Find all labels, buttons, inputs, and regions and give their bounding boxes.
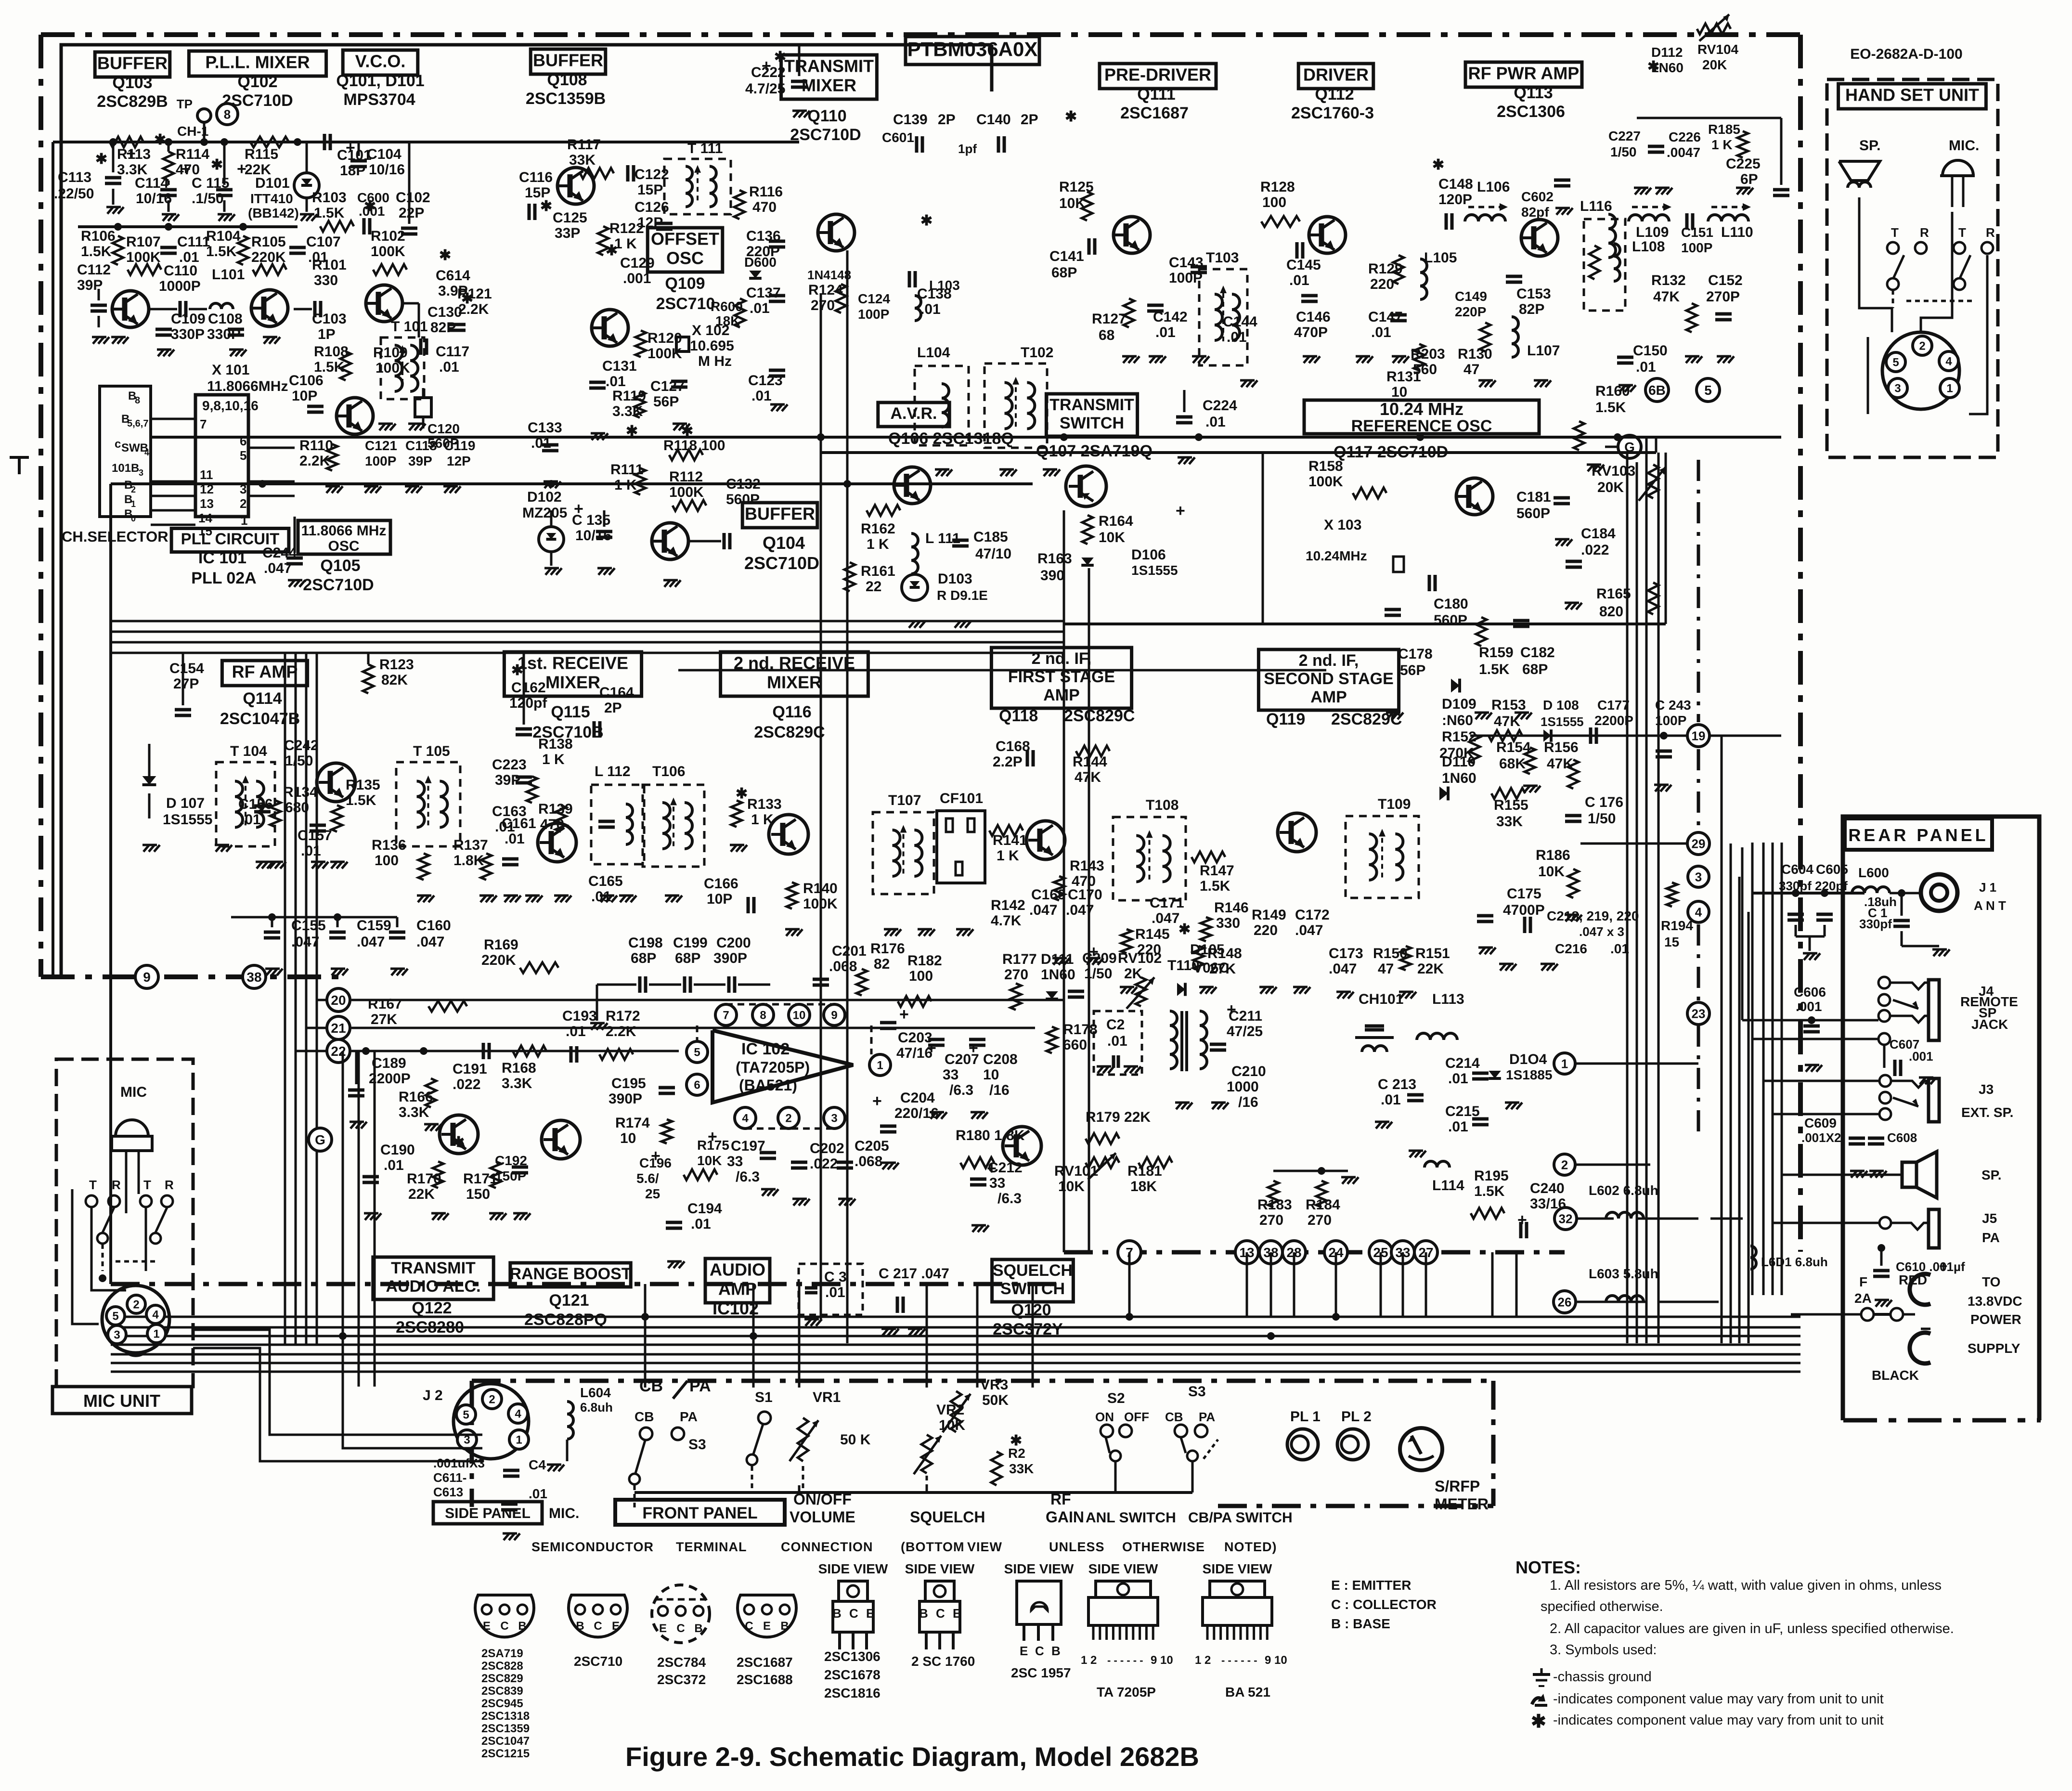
svg-text:100K: 100K <box>803 896 838 912</box>
svg-text:R132: R132 <box>1651 273 1686 288</box>
svg-text:MIC UNIT: MIC UNIT <box>83 1391 160 1411</box>
svg-text:390: 390 <box>1040 568 1064 584</box>
svg-text:PA: PA <box>680 1409 698 1424</box>
svg-text:R118 100: R118 100 <box>663 438 725 454</box>
svg-text:SQUELCH: SQUELCH <box>993 1261 1073 1280</box>
svg-text:L101: L101 <box>212 267 245 283</box>
svg-text:2SC 1957: 2SC 1957 <box>1011 1665 1071 1680</box>
svg-text:B: B <box>518 1620 526 1633</box>
svg-text:C112: C112 <box>77 262 111 278</box>
svg-text:1pf: 1pf <box>958 142 977 156</box>
svg-text:✱: ✱ <box>1178 921 1191 937</box>
svg-text:A.V.R.: A.V.R. <box>890 404 937 423</box>
svg-text:-indicates component value may: -indicates component value may vary from… <box>1553 1691 1884 1707</box>
svg-text:C: C <box>849 1606 858 1621</box>
svg-text:R195: R195 <box>1474 1168 1509 1184</box>
svg-text:C173: C173 <box>1329 946 1363 961</box>
svg-text:11.8066 MHz: 11.8066 MHz <box>301 523 387 539</box>
svg-text:/16: /16 <box>1238 1094 1258 1110</box>
svg-text:.01: .01 <box>1448 1119 1468 1135</box>
svg-text:TRANSMIT: TRANSMIT <box>391 1259 476 1277</box>
svg-text:C111: C111 <box>177 234 210 250</box>
svg-text:J3: J3 <box>1979 1082 1994 1097</box>
svg-text:68K: 68K <box>1499 756 1526 772</box>
svg-text:3: 3 <box>831 1112 837 1125</box>
svg-text:ITT410: ITT410 <box>250 191 293 206</box>
svg-text:R149: R149 <box>1252 907 1286 923</box>
svg-text:C162: C162 <box>511 680 546 696</box>
svg-text:330pf: 330pf <box>1859 917 1892 931</box>
svg-text:2SC710: 2SC710 <box>656 295 715 313</box>
svg-text:C121: C121 <box>365 438 397 453</box>
svg-text:C180: C180 <box>1434 596 1468 612</box>
svg-text:VR1: VR1 <box>813 1389 841 1405</box>
svg-text:2SC784: 2SC784 <box>657 1655 706 1670</box>
svg-text:100K: 100K <box>1308 474 1343 490</box>
svg-text:RV102: RV102 <box>1118 950 1162 966</box>
svg-text:100P: 100P <box>365 454 396 468</box>
svg-text:2SC1687: 2SC1687 <box>1120 104 1189 122</box>
svg-text:C175: C175 <box>1507 886 1541 902</box>
svg-text:REFERENCE OSC: REFERENCE OSC <box>1351 417 1492 435</box>
svg-text:PL 2: PL 2 <box>1341 1409 1372 1425</box>
svg-text:✱: ✱ <box>95 151 107 167</box>
svg-text:.1/50: .1/50 <box>192 191 224 207</box>
svg-text:OFF: OFF <box>1124 1410 1149 1424</box>
svg-text:CH-1: CH-1 <box>177 124 208 139</box>
svg-text:2SC710: 2SC710 <box>574 1654 622 1669</box>
svg-text:.047: .047 <box>1029 902 1057 918</box>
svg-text:47K: 47K <box>1494 714 1520 729</box>
svg-text:100P: 100P <box>858 307 889 322</box>
svg-text:3. Symbols used:: 3. Symbols used: <box>1550 1642 1657 1658</box>
svg-text:82P: 82P <box>1519 301 1544 317</box>
svg-text:2 nd. IF,: 2 nd. IF, <box>1032 649 1092 668</box>
svg-text:C152: C152 <box>1708 273 1743 288</box>
svg-text:100P: 100P <box>1681 240 1712 255</box>
svg-text:C202: C202 <box>810 1141 844 1156</box>
svg-text:+: + <box>1939 1259 1948 1274</box>
svg-text:560P: 560P <box>1516 506 1550 521</box>
svg-text:C140: C140 <box>976 112 1011 128</box>
svg-text:C193: C193 <box>562 1008 597 1024</box>
svg-text:2SC710D: 2SC710D <box>303 576 374 594</box>
svg-text:RF PWR AMP: RF PWR AMP <box>1468 64 1580 83</box>
svg-text:TA 7205P: TA 7205P <box>1097 1685 1156 1700</box>
svg-text:9: 9 <box>143 970 151 985</box>
svg-text:1 K: 1 K <box>867 536 889 552</box>
svg-text:+: + <box>927 1039 936 1057</box>
svg-text:METER: METER <box>1435 1495 1489 1513</box>
svg-text:C194: C194 <box>687 1201 722 1217</box>
svg-text:1 K: 1 K <box>1711 137 1733 152</box>
svg-text:68: 68 <box>1099 327 1114 343</box>
svg-text:19: 19 <box>1692 728 1706 743</box>
svg-text:- - - - - -: - - - - - - <box>1107 1654 1143 1666</box>
svg-text:✱: ✱ <box>511 662 523 678</box>
svg-text:T: T <box>1891 225 1899 240</box>
svg-text:✱: ✱ <box>606 243 618 259</box>
svg-text:.22/50: .22/50 <box>54 186 94 202</box>
svg-text:1.5K: 1.5K <box>1479 662 1510 677</box>
svg-text:.068: .068 <box>855 1154 882 1169</box>
svg-text:IC102: IC102 <box>712 1298 759 1318</box>
svg-text:1 K: 1 K <box>997 848 1019 864</box>
svg-text:4: 4 <box>1695 905 1702 919</box>
svg-text:(BA521): (BA521) <box>739 1077 797 1094</box>
svg-text:C2: C2 <box>1106 1017 1125 1033</box>
svg-text:330P: 330P <box>171 326 205 342</box>
svg-text:2SC1318: 2SC1318 <box>481 1710 530 1723</box>
svg-text:+: + <box>1176 502 1185 520</box>
svg-text:560P: 560P <box>1434 612 1467 628</box>
svg-text:2.2K: 2.2K <box>299 453 330 469</box>
svg-text:TRANSMIT: TRANSMIT <box>1049 396 1134 414</box>
svg-text:R135: R135 <box>346 777 380 793</box>
svg-text:1.5K: 1.5K <box>346 792 376 808</box>
svg-text:MIC.: MIC. <box>1949 138 1979 154</box>
svg-text:12P: 12P <box>447 454 471 468</box>
svg-text:C130: C130 <box>427 304 462 320</box>
svg-text:L106: L106 <box>1477 179 1510 195</box>
svg-text:- - - - - -: - - - - - - <box>1221 1654 1257 1666</box>
svg-text:1S1885: 1S1885 <box>1506 1067 1553 1082</box>
svg-text:AMP: AMP <box>1043 686 1080 704</box>
svg-text:-chassis ground: -chassis ground <box>1553 1669 1652 1685</box>
svg-text:3.3K: 3.3K <box>399 1104 429 1120</box>
svg-text:C604: C604 <box>1781 862 1813 877</box>
svg-text:330: 330 <box>1216 915 1240 931</box>
svg-text:✱: ✱ <box>1432 157 1444 173</box>
svg-text:27P: 27P <box>173 676 199 692</box>
svg-text:.01: .01 <box>495 819 515 835</box>
svg-text:6B: 6B <box>1648 383 1666 398</box>
svg-text:C 243: C 243 <box>1655 698 1691 713</box>
svg-text:2SC829: 2SC829 <box>481 1672 523 1685</box>
svg-text:R151: R151 <box>1415 946 1450 961</box>
svg-text:C114: C114 <box>135 175 168 191</box>
svg-text:C172: C172 <box>1295 907 1330 923</box>
svg-text:E: E <box>763 1620 771 1633</box>
svg-text:R143: R143 <box>1070 858 1104 874</box>
svg-text:T: T <box>1958 225 1966 240</box>
svg-text:1 2: 1 2 <box>1081 1654 1097 1667</box>
svg-text:33: 33 <box>727 1154 743 1169</box>
svg-text:B: B <box>919 1606 928 1621</box>
svg-text:C154: C154 <box>169 661 204 676</box>
svg-text:4700P: 4700P <box>1503 902 1545 918</box>
svg-text:.001: .001 <box>1909 1049 1933 1064</box>
svg-text:Q102: Q102 <box>237 73 277 91</box>
svg-text:R103: R103 <box>312 190 347 206</box>
svg-text:Figure 2-9. Schematic Diagram,: Figure 2-9. Schematic Diagram, Model 268… <box>625 1741 1199 1772</box>
svg-text:2.2K: 2.2K <box>606 1024 636 1039</box>
svg-text:C107: C107 <box>306 234 341 250</box>
svg-text:1000P: 1000P <box>159 278 201 294</box>
svg-text:EXT. SP.: EXT. SP. <box>1961 1105 2013 1120</box>
svg-text:+: + <box>762 57 771 75</box>
svg-text:15: 15 <box>1664 934 1679 949</box>
svg-text:SIDE VIEW: SIDE VIEW <box>1088 1561 1158 1576</box>
svg-text:220P: 220P <box>1455 304 1486 319</box>
svg-text:✱: ✱ <box>364 198 376 214</box>
svg-text:T: T <box>89 1178 97 1192</box>
svg-text:Q113: Q113 <box>1514 84 1553 102</box>
svg-text:NOTED): NOTED) <box>1224 1540 1277 1554</box>
svg-text:RV104: RV104 <box>1697 42 1739 57</box>
svg-text:100K: 100K <box>126 249 161 265</box>
svg-text:33K: 33K <box>1496 814 1523 830</box>
svg-text:1: 1 <box>877 1059 883 1072</box>
svg-text:POWER: POWER <box>1970 1312 2021 1327</box>
svg-text:R141: R141 <box>993 832 1027 848</box>
svg-text:PRE-DRIVER: PRE-DRIVER <box>1104 65 1211 85</box>
svg-text:C209: C209 <box>1082 950 1117 966</box>
svg-text:10K: 10K <box>1058 1179 1085 1194</box>
svg-text:T: T <box>143 1178 151 1192</box>
svg-text:33K: 33K <box>1009 1461 1034 1476</box>
svg-text:PTBM036A0X: PTBM036A0X <box>907 38 1038 60</box>
svg-text:R177: R177 <box>1002 951 1037 967</box>
svg-text:M Hz: M Hz <box>698 353 732 369</box>
svg-text:.022: .022 <box>810 1156 838 1172</box>
svg-text:6: 6 <box>694 1079 700 1092</box>
svg-text:C149: C149 <box>1455 289 1487 304</box>
svg-text:✱: ✱ <box>1065 109 1077 125</box>
svg-text:1.5K: 1.5K <box>1595 400 1626 415</box>
svg-text:L116: L116 <box>1580 198 1612 214</box>
svg-text:R194: R194 <box>1661 918 1693 933</box>
svg-text:.022: .022 <box>453 1077 480 1092</box>
svg-text:10.24MHz: 10.24MHz <box>1306 548 1367 563</box>
svg-text:CF101: CF101 <box>940 791 983 806</box>
svg-text:.01: .01 <box>591 889 611 905</box>
svg-text:CB: CB <box>639 1377 663 1395</box>
svg-text:2SC829B: 2SC829B <box>97 92 168 111</box>
svg-text:220pf: 220pf <box>1815 879 1848 893</box>
svg-text:MIC.: MIC. <box>549 1505 579 1521</box>
svg-text:470: 470 <box>752 199 777 215</box>
svg-text:L602 6.8uh: L602 6.8uh <box>1589 1183 1658 1198</box>
svg-text:G: G <box>315 1132 325 1147</box>
svg-text:C: C <box>1035 1644 1044 1658</box>
svg-text:J5: J5 <box>1982 1211 1997 1226</box>
svg-text:C606: C606 <box>1794 985 1826 999</box>
svg-text:39P: 39P <box>495 772 520 788</box>
svg-text:1 K: 1 K <box>542 752 565 767</box>
svg-text:R155: R155 <box>1494 797 1528 813</box>
svg-text:22K: 22K <box>408 1186 435 1202</box>
svg-text:OSC: OSC <box>328 538 359 554</box>
svg-text:2SC829C: 2SC829C <box>1064 707 1135 725</box>
svg-text:V.C.O.: V.C.O. <box>355 52 406 71</box>
svg-text:2SC710D: 2SC710D <box>744 553 819 573</box>
svg-text:+: + <box>899 1005 909 1024</box>
svg-text:R167: R167 <box>368 996 402 1012</box>
svg-text:GAIN: GAIN <box>1046 1508 1084 1526</box>
svg-text:T108: T108 <box>1146 797 1178 813</box>
svg-text:R160: R160 <box>1595 383 1630 399</box>
svg-text:C195: C195 <box>611 1076 646 1091</box>
svg-text:X 101: X 101 <box>212 362 249 378</box>
svg-text:C145: C145 <box>1286 257 1321 273</box>
svg-text:270: 270 <box>1259 1212 1283 1228</box>
svg-text:T103: T103 <box>1206 250 1239 266</box>
svg-text:RANGE BOOST: RANGE BOOST <box>509 1265 631 1283</box>
svg-text:330: 330 <box>314 273 338 288</box>
svg-text:22: 22 <box>866 579 881 595</box>
svg-text:2SC1047: 2SC1047 <box>481 1735 530 1748</box>
svg-text:1 2: 1 2 <box>1195 1654 1211 1667</box>
svg-text:220K: 220K <box>251 249 286 265</box>
svg-text:C198: C198 <box>628 935 663 951</box>
svg-text:TERMINAL: TERMINAL <box>676 1540 747 1554</box>
svg-text:C133: C133 <box>528 420 562 436</box>
svg-text:1000: 1000 <box>1227 1079 1259 1095</box>
svg-text:/6.3: /6.3 <box>949 1082 973 1098</box>
svg-text:10: 10 <box>1391 384 1407 400</box>
svg-text:.01: .01 <box>606 374 626 389</box>
svg-text:C116: C116 <box>519 169 553 185</box>
svg-text:C189: C189 <box>372 1055 406 1071</box>
svg-text:R139: R139 <box>538 801 573 817</box>
svg-text:C613: C613 <box>433 1485 463 1499</box>
svg-text:MIXER: MIXER <box>767 673 822 692</box>
svg-text:D1O4: D1O4 <box>1509 1051 1547 1067</box>
svg-text:C225: C225 <box>1726 156 1761 172</box>
svg-text:SIDE VIEW: SIDE VIEW <box>905 1561 975 1576</box>
svg-text:.01: .01 <box>1205 414 1226 430</box>
svg-text:R145: R145 <box>1135 926 1170 942</box>
svg-text:+: + <box>651 1147 660 1165</box>
svg-text:L114: L114 <box>1432 1178 1464 1194</box>
svg-text:7: 7 <box>200 417 207 431</box>
svg-text:B: B <box>694 1622 702 1635</box>
svg-text:39P: 39P <box>408 454 432 468</box>
svg-text:SP.: SP. <box>1981 1168 2002 1182</box>
svg-text:B : BASE: B : BASE <box>1331 1616 1390 1631</box>
svg-text:.01: .01 <box>1107 1033 1127 1049</box>
svg-text:.047: .047 <box>357 934 385 950</box>
svg-text:2: 2 <box>785 1112 791 1125</box>
svg-text:✱: ✱ <box>920 213 932 229</box>
svg-text:C208: C208 <box>983 1051 1018 1067</box>
svg-text:-indicates component value may: -indicates component value may vary from… <box>1553 1713 1884 1728</box>
svg-text:.01: .01 <box>920 301 941 317</box>
svg-text:Q103: Q103 <box>112 74 152 92</box>
svg-text:R106: R106 <box>81 228 116 244</box>
svg-text:101B: 101B <box>112 462 139 475</box>
svg-text:10K: 10K <box>1538 864 1565 880</box>
svg-text:22K: 22K <box>1417 961 1444 977</box>
svg-text:C: C <box>594 1620 602 1633</box>
svg-text:T102: T102 <box>1021 345 1053 361</box>
svg-text:T 111: T 111 <box>687 141 723 156</box>
svg-text:5: 5 <box>112 1310 118 1323</box>
svg-text:2A: 2A <box>1854 1291 1872 1306</box>
svg-text:.01: .01 <box>241 812 261 828</box>
svg-text:C146: C146 <box>1296 309 1331 325</box>
svg-text:+: + <box>872 1092 882 1110</box>
svg-text:2P: 2P <box>938 112 956 128</box>
svg-text:2SC1215: 2SC1215 <box>481 1747 530 1760</box>
svg-text::N60: :N60 <box>1442 713 1473 728</box>
svg-text:D109: D109 <box>1442 696 1476 712</box>
svg-text:1: 1 <box>1561 1056 1568 1071</box>
svg-text:270: 270 <box>811 298 835 313</box>
svg-text:29: 29 <box>1692 836 1706 851</box>
svg-text:L105: L105 <box>1424 250 1457 266</box>
svg-text:C205: C205 <box>855 1138 889 1154</box>
svg-text:C150: C150 <box>1633 343 1668 359</box>
svg-text:.01: .01 <box>1155 324 1176 340</box>
svg-text:D101: D101 <box>255 175 290 191</box>
svg-text:10: 10 <box>793 1009 806 1022</box>
svg-text:C102: C102 <box>396 190 430 206</box>
svg-text:BLACK: BLACK <box>1872 1368 1919 1383</box>
svg-text:CH101: CH101 <box>1359 991 1403 1007</box>
svg-text:C 176: C 176 <box>1585 794 1623 810</box>
svg-text:R123: R123 <box>379 657 414 673</box>
svg-text:L600: L600 <box>1858 865 1889 880</box>
svg-text:BUFFER: BUFFER <box>745 504 815 524</box>
svg-text:11.8066MHz: 11.8066MHz <box>207 378 288 394</box>
svg-text:8: 8 <box>760 1009 766 1022</box>
svg-text:FIRST STAGE: FIRST STAGE <box>1008 668 1115 686</box>
svg-text:2SC839: 2SC839 <box>481 1685 523 1698</box>
svg-text:2 nd. IF,: 2 nd. IF, <box>1299 651 1359 670</box>
svg-text:C113: C113 <box>58 169 91 185</box>
svg-text:C200: C200 <box>716 935 751 951</box>
svg-text:PA: PA <box>689 1377 711 1395</box>
svg-text:C168: C168 <box>996 739 1030 754</box>
svg-text:5: 5 <box>1892 356 1899 369</box>
svg-text:1: 1 <box>1946 382 1953 395</box>
svg-text:25: 25 <box>645 1186 660 1201</box>
svg-text:.001ufX3: .001ufX3 <box>433 1456 485 1470</box>
svg-text:✱: ✱ <box>626 423 638 439</box>
svg-text:RV103: RV103 <box>1592 463 1635 479</box>
svg-text:+: + <box>181 160 191 178</box>
svg-text:NOTES:: NOTES: <box>1515 1557 1581 1577</box>
svg-text:56P: 56P <box>1400 662 1425 678</box>
svg-text:R174: R174 <box>615 1115 650 1131</box>
svg-text:J 2: J 2 <box>423 1388 443 1403</box>
svg-text:32: 32 <box>1559 1211 1573 1226</box>
svg-text:2SC1359B: 2SC1359B <box>526 90 606 108</box>
svg-text:T109: T109 <box>1378 796 1411 812</box>
svg-text:R: R <box>1986 225 1995 240</box>
svg-text:B: B <box>832 1606 842 1621</box>
svg-text:11: 11 <box>200 467 213 482</box>
svg-text:C: C <box>676 1622 685 1635</box>
svg-text:2: 2 <box>1919 340 1925 353</box>
svg-text:BUFFER: BUFFER <box>97 53 168 73</box>
svg-text:68P: 68P <box>675 950 700 966</box>
svg-text:C164: C164 <box>599 685 634 701</box>
svg-text:C141: C141 <box>1049 248 1084 264</box>
svg-text:TP: TP <box>177 97 193 111</box>
svg-text:EO-2682A-D-100: EO-2682A-D-100 <box>1850 46 1962 62</box>
svg-text:(TA7205P): (TA7205P) <box>736 1059 810 1076</box>
svg-text:.01: .01 <box>1610 941 1629 956</box>
svg-text:MIXER: MIXER <box>545 673 600 692</box>
svg-text:R159: R159 <box>1479 645 1514 661</box>
svg-text:D110: D110 <box>1442 754 1476 770</box>
svg-text:56P: 56P <box>653 394 679 410</box>
svg-text:C201: C201 <box>832 943 867 959</box>
svg-text:T 105: T 105 <box>413 743 450 759</box>
